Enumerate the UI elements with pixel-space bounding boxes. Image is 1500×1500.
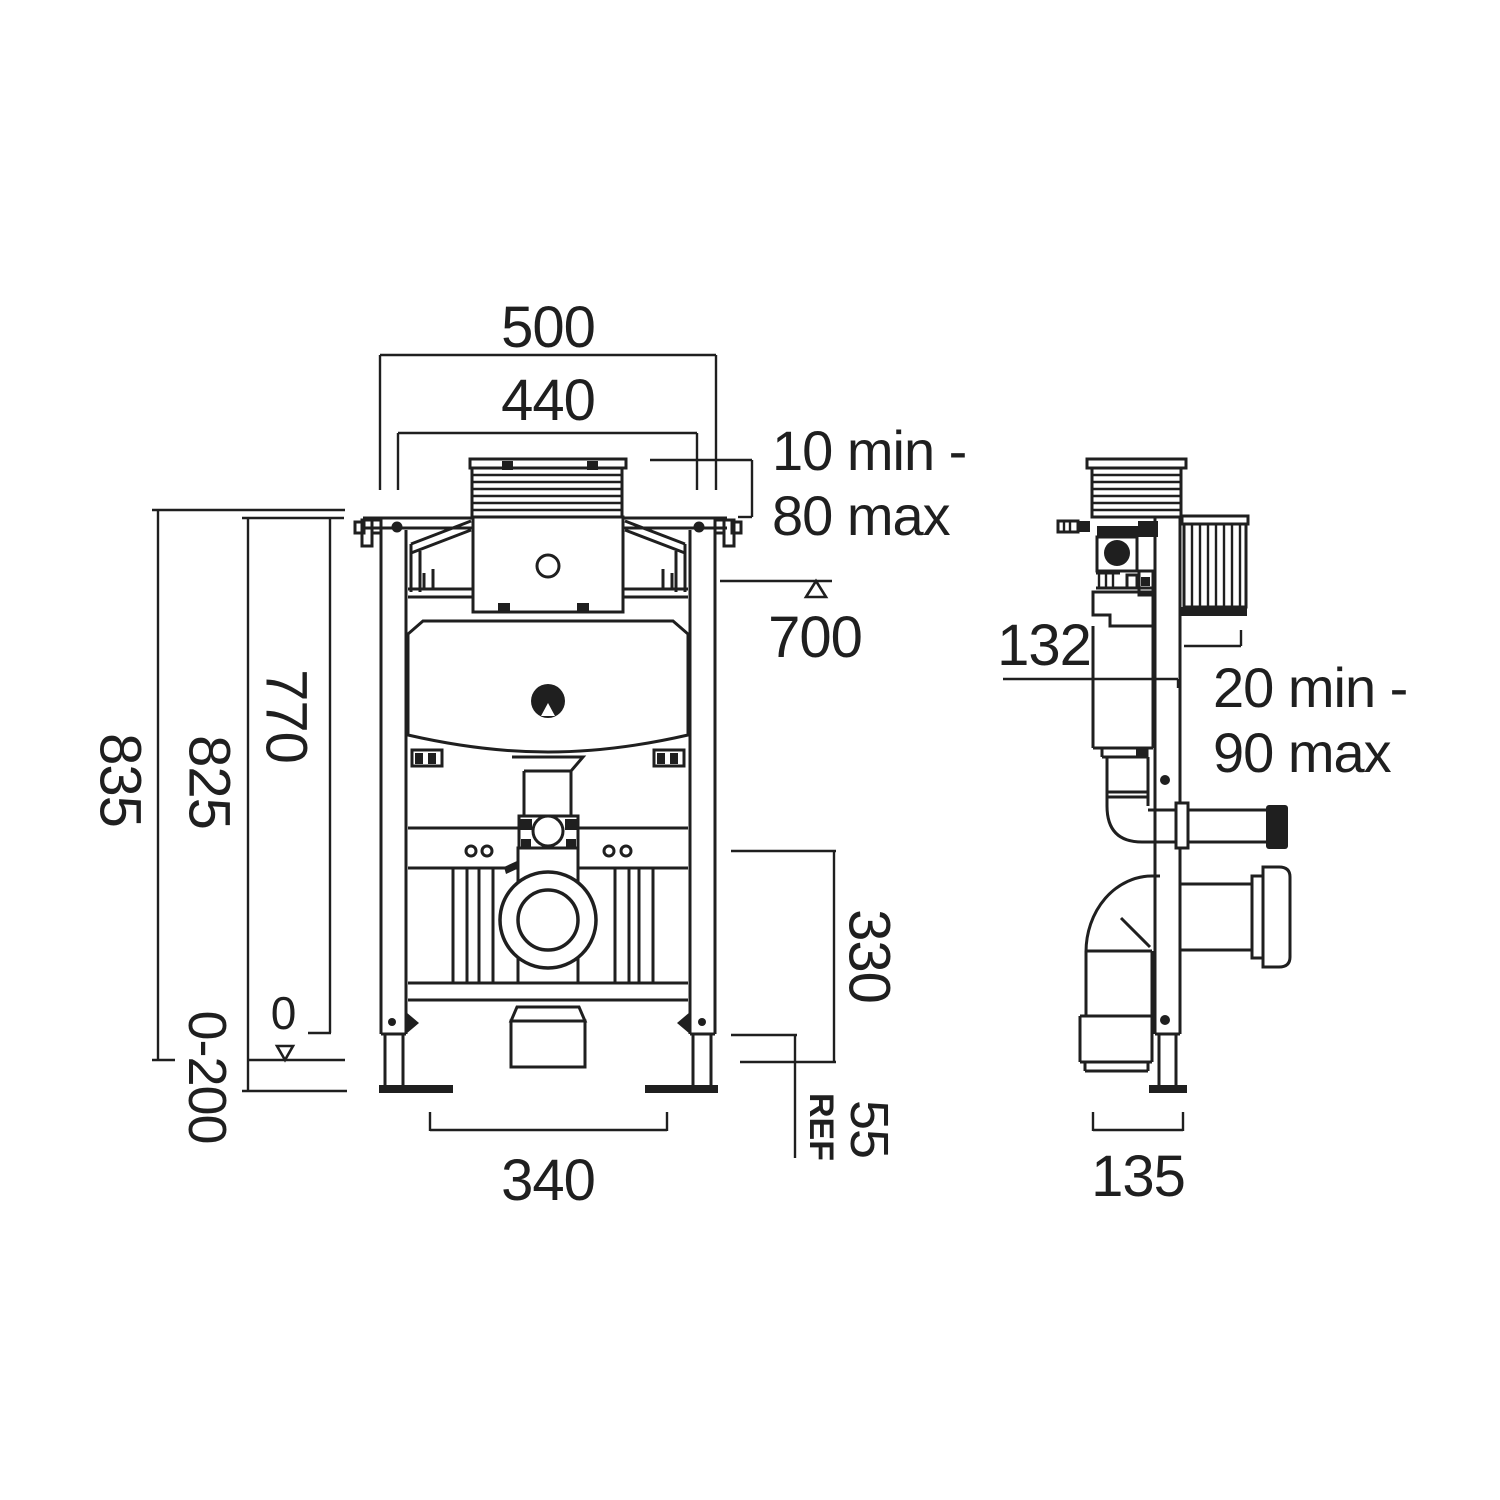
- ref-label: REF: [802, 1093, 840, 1161]
- dim-frame-depth-label: 135: [1091, 1144, 1185, 1209]
- dim-plate-depth-label-1: 10 min -: [772, 419, 966, 482]
- cistern-tank: [408, 621, 688, 766]
- floor-zero-label: 0: [271, 987, 296, 1039]
- technical-drawing-page: 500 440 10 min - 80 max 700: [0, 0, 1500, 1500]
- dim-height-inner-label: 770: [254, 669, 319, 763]
- foot-plate-right: [645, 1085, 718, 1093]
- dim-flush-height-label: 700: [768, 605, 862, 670]
- foot-plate-left: [379, 1085, 453, 1093]
- dim-leg-adjustment-label: 0-200: [177, 1010, 237, 1143]
- dim-width-outer-label: 500: [501, 295, 595, 360]
- side-flush-plate: [1181, 516, 1248, 616]
- pipe-cap: [1266, 805, 1288, 849]
- outlet-funnel: [511, 1007, 585, 1067]
- bolt-icon: [392, 522, 403, 533]
- dim-width-inner-label: 440: [501, 368, 595, 433]
- dim-pipe-setback-label: 132: [997, 613, 1091, 678]
- dim-finish-depth-label-2: 90 max: [1213, 721, 1392, 784]
- dim-base-width-label: 340: [501, 1148, 595, 1213]
- dim-height-frame-label: 825: [177, 735, 242, 829]
- dim-plate-depth-label-2: 80 max: [772, 484, 951, 547]
- dim-finish-depth-label-1: 20 min -: [1213, 656, 1407, 719]
- flush-plate-shaft: [470, 459, 626, 517]
- bolt-icon: [694, 522, 705, 533]
- dim-ref-offset-label: 55: [839, 1100, 899, 1158]
- inlet-port: [1104, 540, 1130, 566]
- dim-height-overall-label: 835: [88, 733, 153, 827]
- dim-outlet-zone-label: 330: [837, 909, 902, 1003]
- side-flush-shaft: [1087, 459, 1186, 517]
- wc-frame-diagram: 500 440 10 min - 80 max 700: [0, 0, 1500, 1500]
- access-box: [473, 517, 623, 612]
- side-foot-plate: [1149, 1085, 1187, 1093]
- pipe-coupling: [519, 816, 578, 848]
- waste-socket: [1263, 867, 1290, 967]
